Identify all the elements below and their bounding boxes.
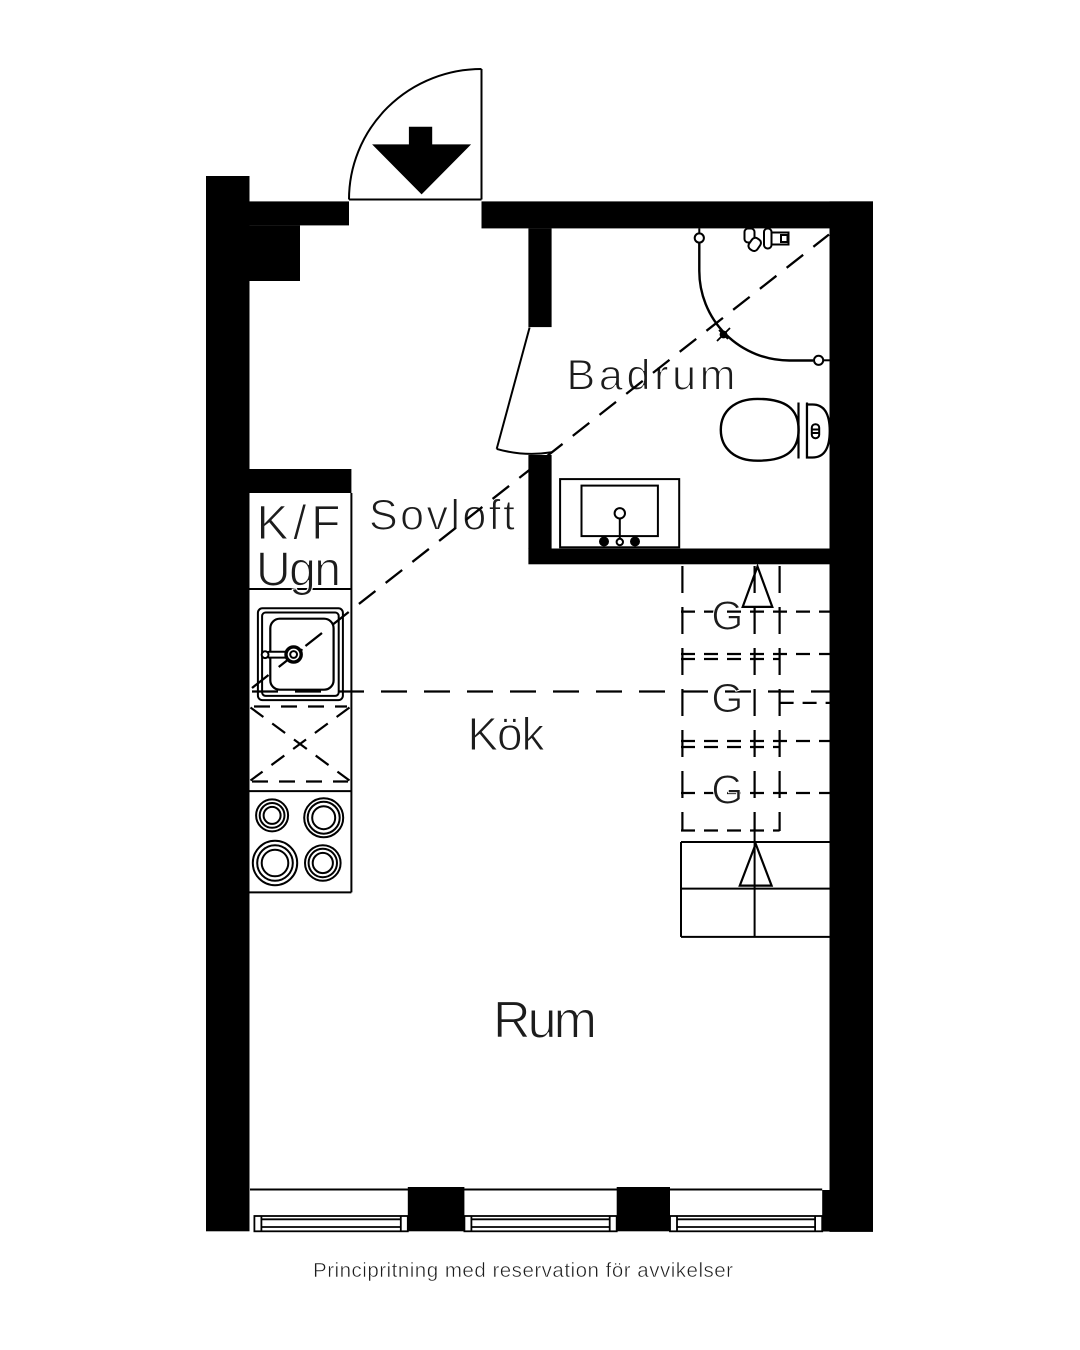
svg-text:K/F: K/F xyxy=(257,497,341,550)
svg-text:Principritning med reservation: Principritning med reservation för avvik… xyxy=(313,1259,733,1282)
svg-text:G: G xyxy=(711,675,743,721)
svg-text:G: G xyxy=(711,767,743,813)
svg-text:G: G xyxy=(711,593,743,639)
svg-text:Ugn: Ugn xyxy=(256,544,341,597)
svg-text:Kök: Kök xyxy=(468,708,546,760)
svg-text:Rum: Rum xyxy=(493,992,597,1050)
